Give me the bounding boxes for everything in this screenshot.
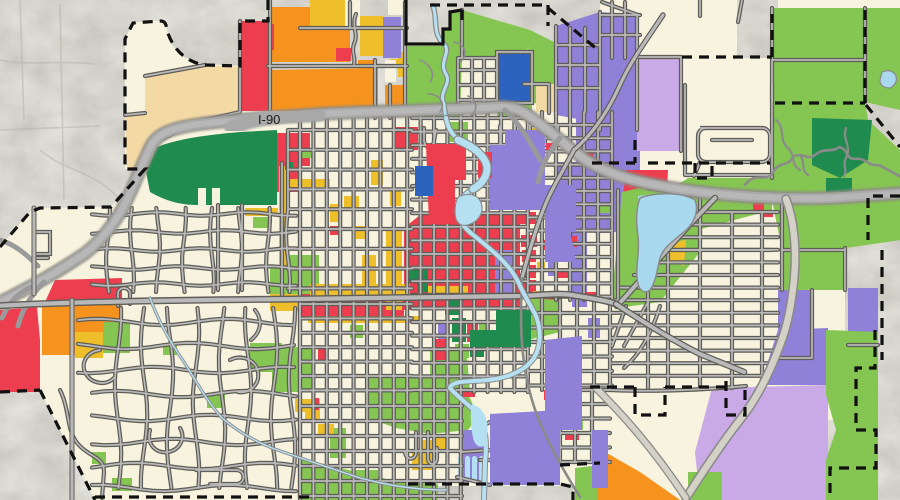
svg-text:I-90: I-90: [258, 112, 280, 127]
